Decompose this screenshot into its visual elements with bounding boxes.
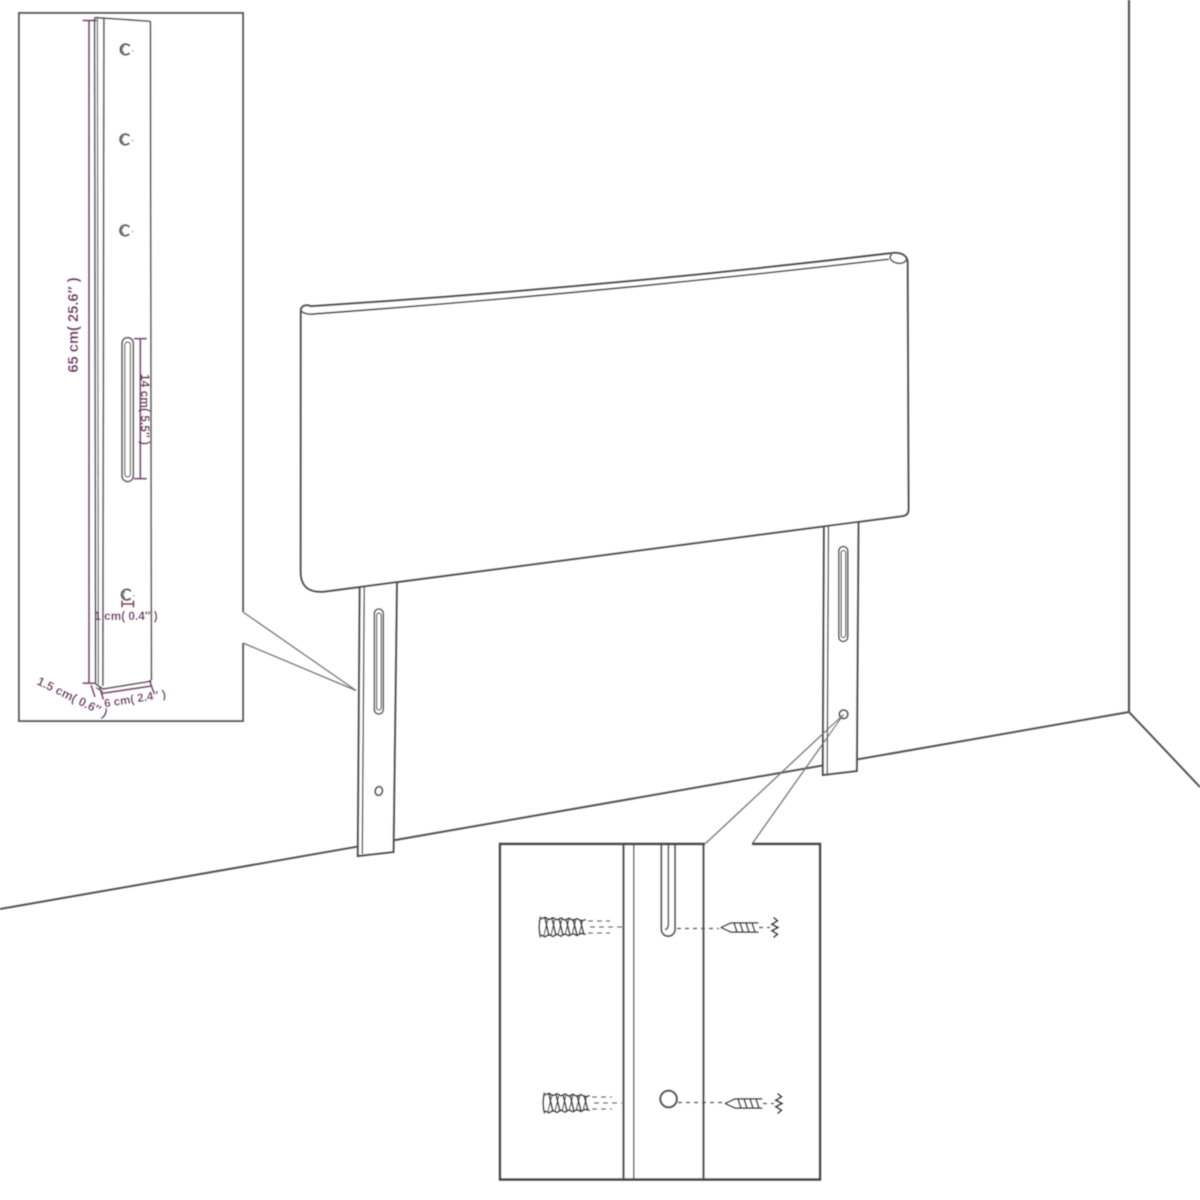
svg-text:14 cm( 5.5″ ): 14 cm( 5.5″ ) xyxy=(138,374,152,445)
svg-text:1 cm( 0.4″ ): 1 cm( 0.4″ ) xyxy=(94,609,157,623)
svg-text:65 cm( 25.6″ ): 65 cm( 25.6″ ) xyxy=(66,277,82,372)
